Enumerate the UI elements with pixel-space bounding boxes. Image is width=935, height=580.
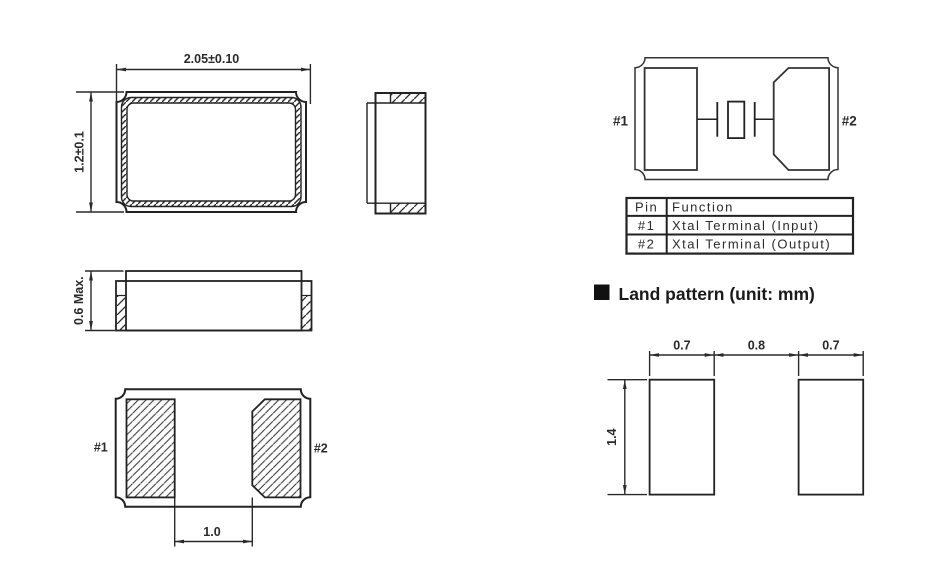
svg-text:#2: #2 — [842, 114, 857, 129]
svg-text:#1: #1 — [638, 218, 655, 233]
svg-text:#2: #2 — [638, 237, 655, 252]
svg-text:Xtal Terminal (Input): Xtal Terminal (Input) — [672, 218, 820, 233]
svg-text:#1: #1 — [613, 114, 629, 129]
svg-text:#1: #1 — [94, 440, 108, 454]
svg-text:0.7: 0.7 — [673, 339, 690, 353]
svg-text:0.6 Max.: 0.6 Max. — [72, 276, 86, 325]
svg-text:Pin: Pin — [635, 200, 658, 215]
svg-text:Xtal Terminal (Output): Xtal Terminal (Output) — [672, 237, 831, 252]
svg-text:0.7: 0.7 — [822, 339, 839, 353]
svg-text:1.2±0.1: 1.2±0.1 — [73, 131, 87, 173]
svg-text:#2: #2 — [314, 442, 328, 456]
svg-text:2.05±0.10: 2.05±0.10 — [184, 52, 240, 66]
svg-text:Function: Function — [672, 200, 734, 215]
svg-text:1.0: 1.0 — [203, 525, 220, 539]
svg-text:0.8: 0.8 — [748, 339, 765, 353]
svg-text:Land pattern (unit: mm): Land pattern (unit: mm) — [619, 284, 815, 304]
svg-text:1.4: 1.4 — [605, 428, 619, 445]
